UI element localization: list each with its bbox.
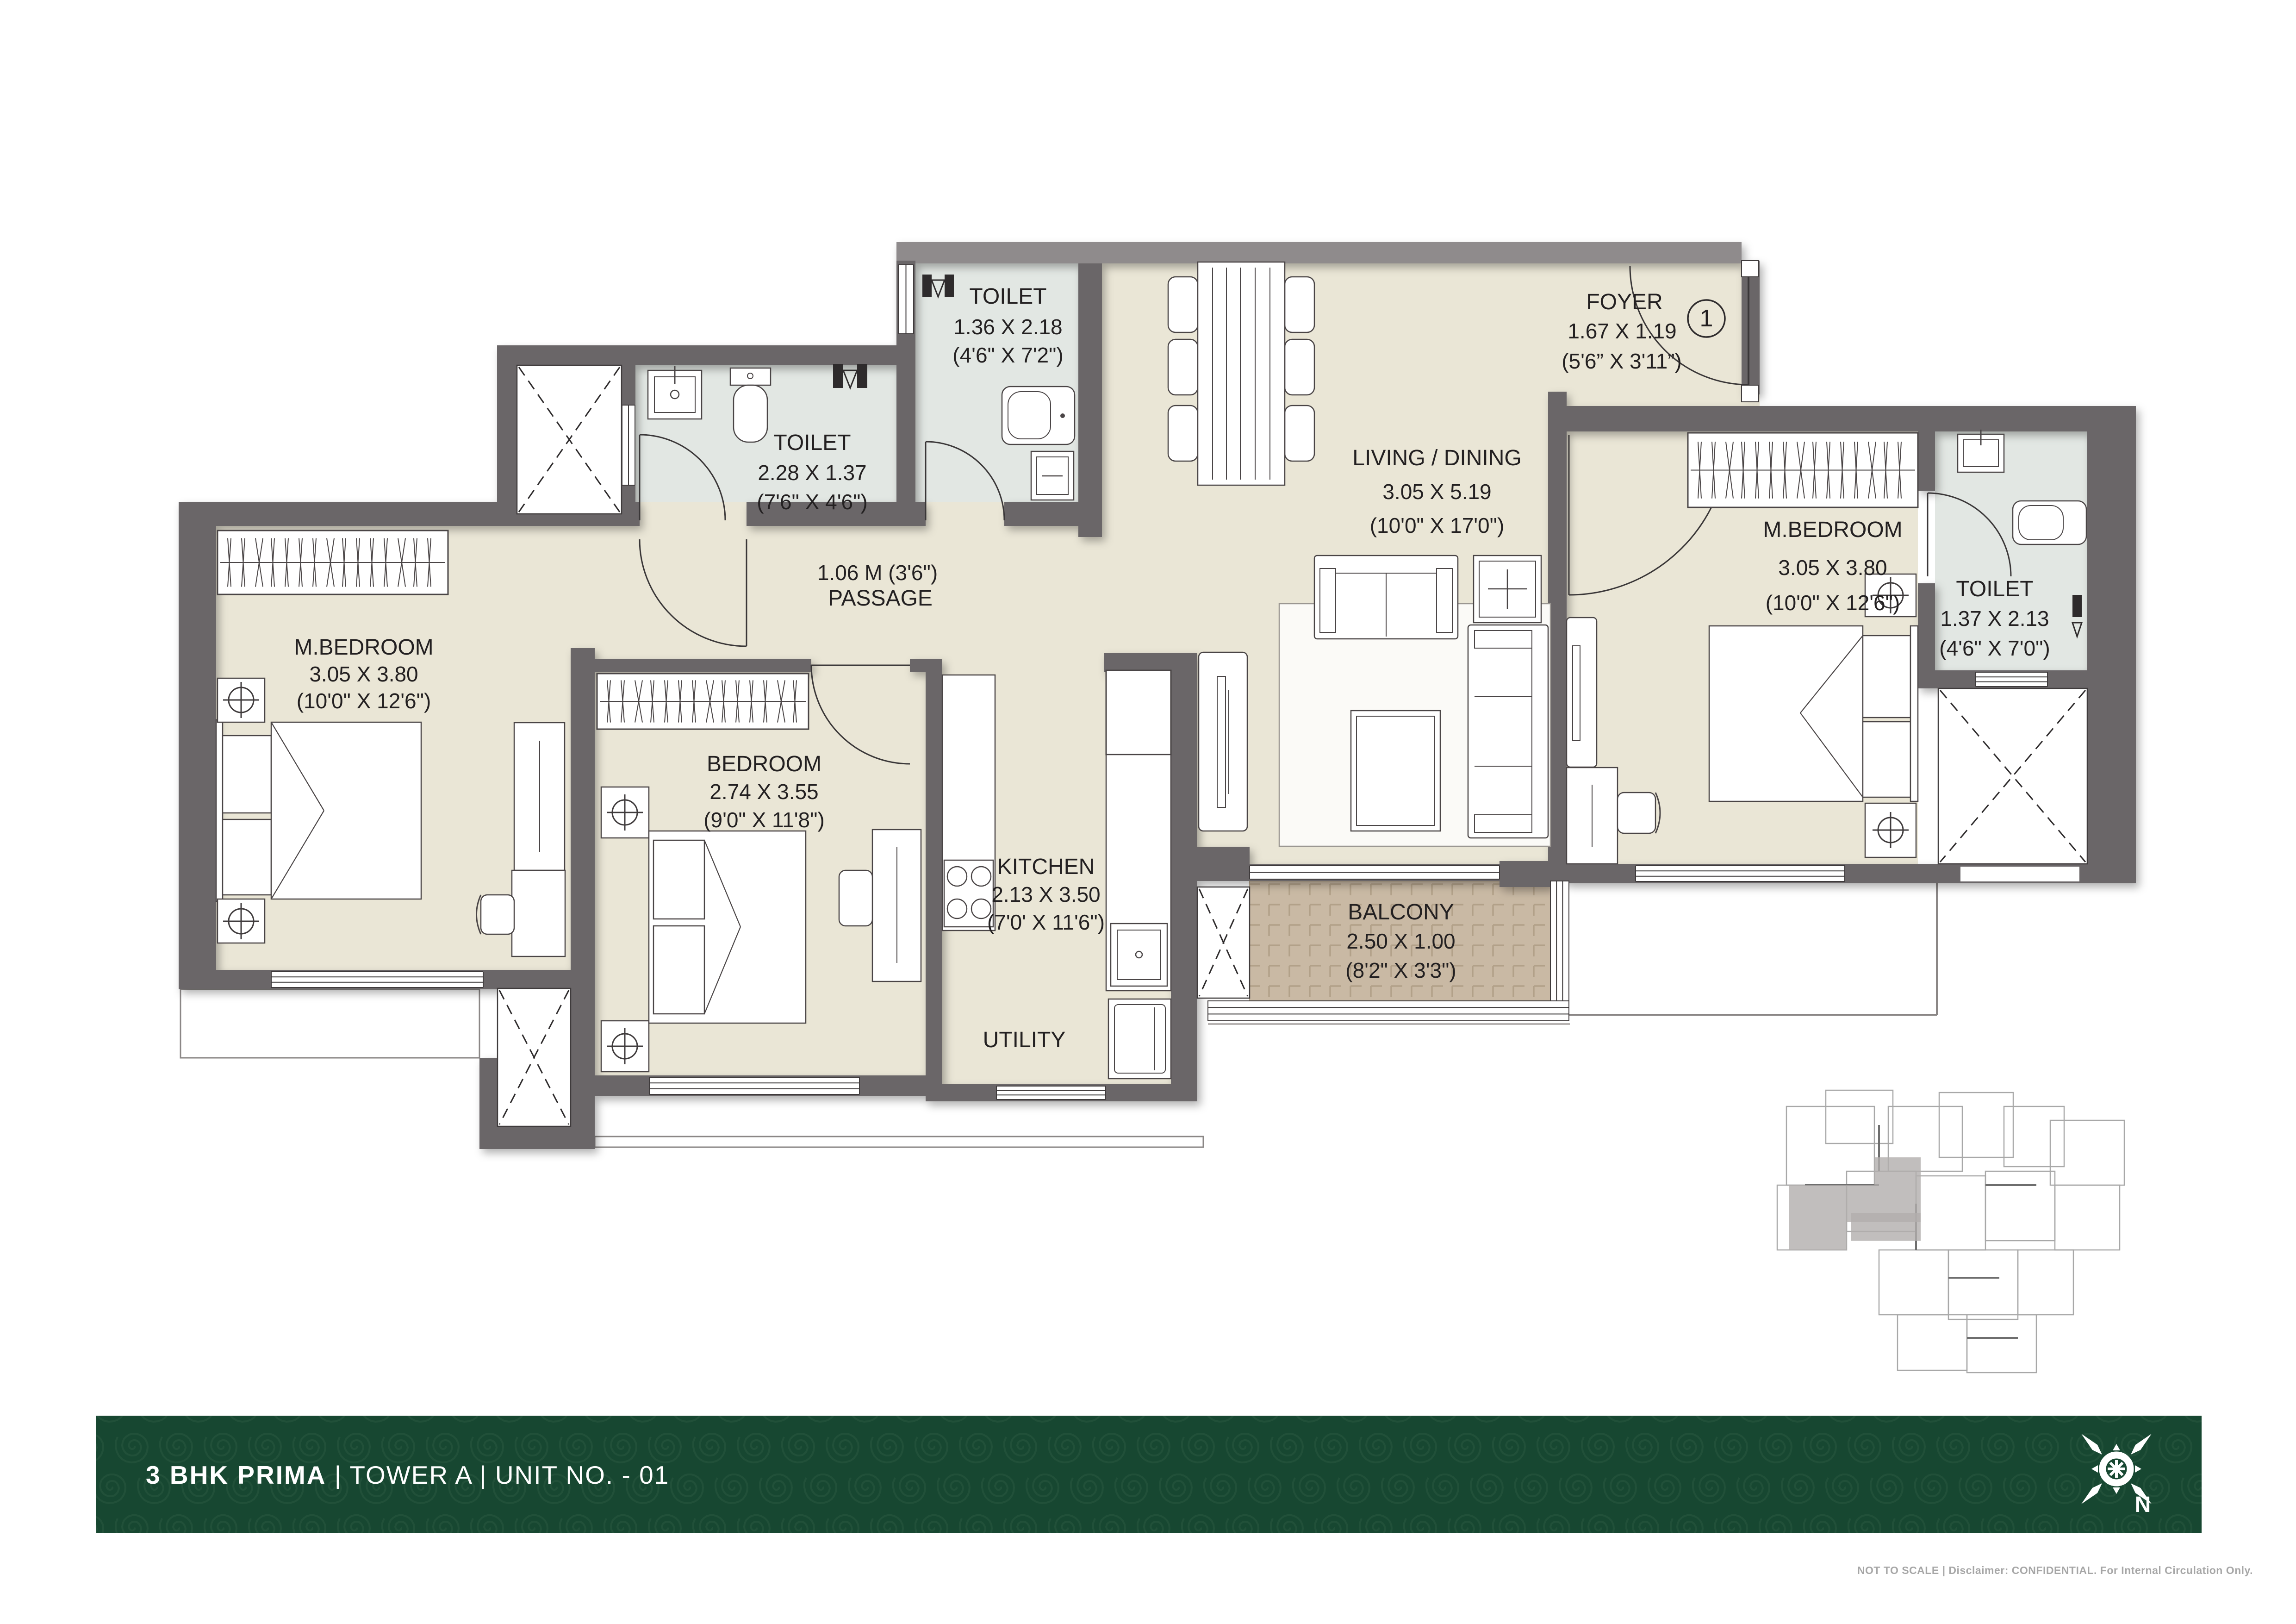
svg-text:2.13 X 3.50: 2.13 X 3.50	[991, 882, 1100, 906]
svg-text:BEDROOM: BEDROOM	[707, 752, 821, 776]
svg-text:NOT TO SCALE | Disclaimer: CON: NOT TO SCALE | Disclaimer: CONFIDENTIAL.…	[1857, 1564, 2253, 1576]
svg-text:1.67 X 1.19: 1.67 X 1.19	[1568, 319, 1676, 343]
svg-text:UTILITY: UTILITY	[983, 1028, 1066, 1052]
svg-text:(4'6" X 7'0"): (4'6" X 7'0")	[1939, 636, 2050, 660]
svg-text:(7'6" X 4'6"): (7'6" X 4'6")	[757, 490, 867, 514]
svg-text:3.05 X 3.80: 3.05 X 3.80	[309, 662, 418, 686]
svg-text:(8'2" X 3'3"): (8'2" X 3'3")	[1345, 958, 1456, 982]
svg-text:TOILET: TOILET	[969, 284, 1046, 309]
svg-text:1.37 X 2.13: 1.37 X 2.13	[1940, 606, 2049, 631]
svg-text:PASSAGE: PASSAGE	[828, 586, 933, 611]
svg-text:2.74 X 3.55: 2.74 X 3.55	[709, 780, 818, 804]
svg-text:3 BHK PRIMA | TOWER A | UNIT N: 3 BHK PRIMA | TOWER A | UNIT NO. - 01	[146, 1461, 669, 1489]
svg-text:N: N	[2135, 1493, 2151, 1517]
svg-text:(10'0" X 17'0"): (10'0" X 17'0")	[1370, 513, 1505, 537]
svg-text:TOILET: TOILET	[773, 431, 851, 455]
svg-text:1: 1	[1700, 305, 1713, 332]
svg-text:2.28 X 1.37: 2.28 X 1.37	[758, 461, 866, 485]
svg-text:LIVING / DINING: LIVING / DINING	[1352, 446, 1521, 470]
svg-text:(10'0" X 12'6"): (10'0" X 12'6")	[297, 689, 431, 713]
svg-text:3.05 X 5.19: 3.05 X 5.19	[1382, 480, 1491, 504]
svg-text:3.05 X 3.80: 3.05 X 3.80	[1778, 556, 1887, 580]
svg-text:KITCHEN: KITCHEN	[997, 855, 1095, 879]
svg-text:FOYER: FOYER	[1586, 290, 1662, 314]
svg-text:TOILET: TOILET	[1956, 577, 2033, 601]
svg-text:1.06 M (3'6"): 1.06 M (3'6")	[817, 561, 938, 585]
svg-text:(5'6” X 3'11”): (5'6” X 3'11”)	[1562, 349, 1682, 373]
svg-text:M.BEDROOM: M.BEDROOM	[1763, 518, 1902, 542]
svg-text:(10'0" X 12'6"): (10'0" X 12'6")	[1766, 591, 1900, 615]
svg-text:(7'0' X 11'6"): (7'0' X 11'6")	[987, 910, 1105, 934]
svg-text:BALCONY: BALCONY	[1348, 900, 1454, 924]
svg-text:(9'0" X 11'8"): (9'0" X 11'8")	[703, 808, 825, 832]
svg-text:M.BEDROOM: M.BEDROOM	[294, 635, 433, 660]
svg-text:2.50 X 1.00: 2.50 X 1.00	[1346, 929, 1455, 953]
svg-text:1.36 X 2.18: 1.36 X 2.18	[953, 315, 1062, 339]
svg-text:(4'6" X 7'2"): (4'6" X 7'2")	[952, 343, 1063, 367]
